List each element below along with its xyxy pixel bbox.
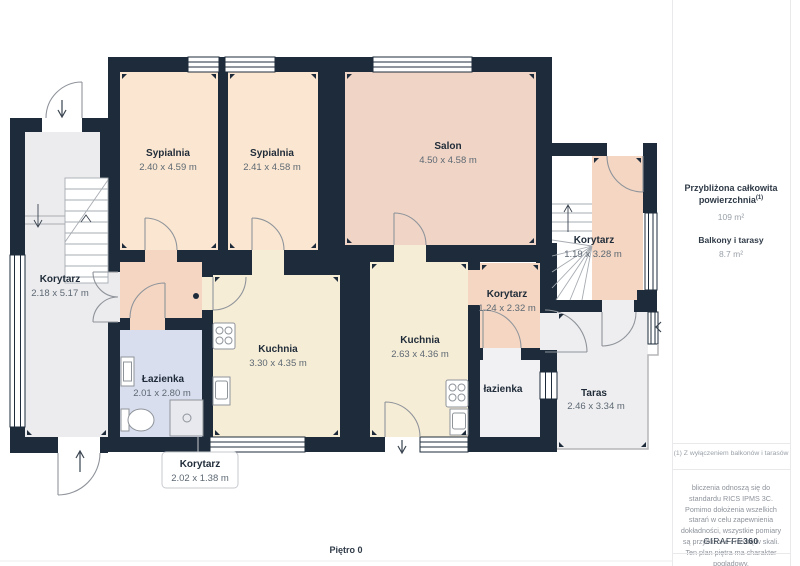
- dims-korytarz-entry: 2.02 x 1.38 m: [171, 473, 229, 484]
- sidebar-right-border: [790, 0, 791, 566]
- label-sypialnia-2: Sypialnia: [250, 148, 294, 159]
- floor-label: Piętro 0: [300, 545, 392, 555]
- window-korytarz-right: [645, 213, 657, 290]
- room-junction-corridor: [120, 262, 202, 318]
- column-marker: [193, 293, 199, 299]
- label-taras: Taras: [581, 388, 607, 399]
- room-korytarz-right: [592, 156, 643, 300]
- room-kuchnia-1: [213, 275, 340, 437]
- dims-korytarz-left: 2.18 x 5.17 m: [31, 288, 89, 299]
- label-lazienka-2: łazienka: [484, 384, 523, 395]
- total-area-label: Przybliżona całkowita powierzchnia(1): [672, 183, 790, 206]
- window-sypialnia-1: [188, 57, 219, 72]
- room-lazienka-2: [480, 360, 540, 437]
- balcony-area-label: Balkony i tarasy: [672, 235, 790, 245]
- arrow-entrance-bottom: [76, 451, 84, 472]
- footnote-divider-top: [672, 443, 790, 444]
- stove-kuchnia-1: [213, 323, 235, 349]
- area-summary: Przybliżona całkowita powierzchnia(1) 10…: [672, 183, 790, 259]
- sink-kuchnia-1: [213, 377, 230, 405]
- footnote: (1) Z wyłączeniem balkonów i tarasów: [672, 450, 790, 457]
- sidebar-left-border: [672, 0, 673, 566]
- dims-sypialnia-2: 2.41 x 4.58 m: [243, 162, 301, 173]
- dims-kuchnia-2: 2.63 x 4.36 m: [391, 349, 449, 360]
- logo-divider: [672, 553, 790, 554]
- toilet-lazienka-1: [121, 409, 154, 431]
- label-korytarz-mid: Korytarz: [487, 289, 528, 300]
- room-sypialnia-1: [120, 72, 218, 250]
- label-korytarz-right: Korytarz: [574, 235, 615, 246]
- dims-taras: 2.46 x 3.34 m: [567, 401, 625, 412]
- label-lazienka-1: Łazienka: [142, 374, 185, 385]
- label-kuchnia-2: Kuchnia: [400, 335, 440, 346]
- dims-korytarz-mid: 1.24 x 2.32 m: [478, 303, 536, 314]
- floor-plan-canvas: Sypialnia 2.40 x 4.59 m Sypialnia 2.41 x…: [0, 0, 672, 566]
- sink-lazienka-1: [121, 357, 134, 386]
- label-kuchnia-1: Kuchnia: [258, 344, 298, 355]
- dims-korytarz-right: 1.19 x 3.28 m: [564, 249, 622, 260]
- label-sypialnia-1: Sypialnia: [146, 148, 190, 159]
- dims-salon: 4.50 x 4.58 m: [419, 155, 477, 166]
- dims-kuchnia-1: 3.30 x 4.35 m: [249, 358, 307, 369]
- room-sypialnia-2: [228, 72, 318, 250]
- window-sypialnia-2: [225, 57, 275, 72]
- floorplan-viewer: Sypialnia 2.40 x 4.59 m Sypialnia 2.41 x…: [0, 0, 800, 566]
- door-entrance-bottom: [58, 453, 100, 495]
- window-kuchnia-1: [210, 437, 305, 452]
- balcony-area-value: 8.7 m²: [672, 249, 790, 259]
- arrow-entrance-top: [58, 100, 66, 117]
- footnote-divider-bottom: [672, 469, 790, 470]
- label-salon: Salon: [434, 141, 461, 152]
- dims-lazienka-1: 2.01 x 2.80 m: [133, 388, 191, 399]
- giraffe360-logo: GIRAFFE360: [672, 536, 790, 546]
- total-area-value: 109 m²: [672, 212, 790, 222]
- stove-kuchnia-2: [446, 380, 468, 407]
- label-korytarz-entry: Korytarz: [180, 459, 221, 470]
- window-korytarz-left: [10, 255, 25, 427]
- shower-lazienka-1: [170, 400, 203, 436]
- dims-sypialnia-1: 2.40 x 4.59 m: [139, 162, 197, 173]
- window-kuchnia-2: [420, 437, 468, 452]
- label-korytarz-left: Korytarz: [40, 274, 81, 285]
- window-lazienka-2: [540, 372, 557, 399]
- window-salon: [373, 57, 472, 72]
- room-stairs-right-area: [552, 156, 592, 303]
